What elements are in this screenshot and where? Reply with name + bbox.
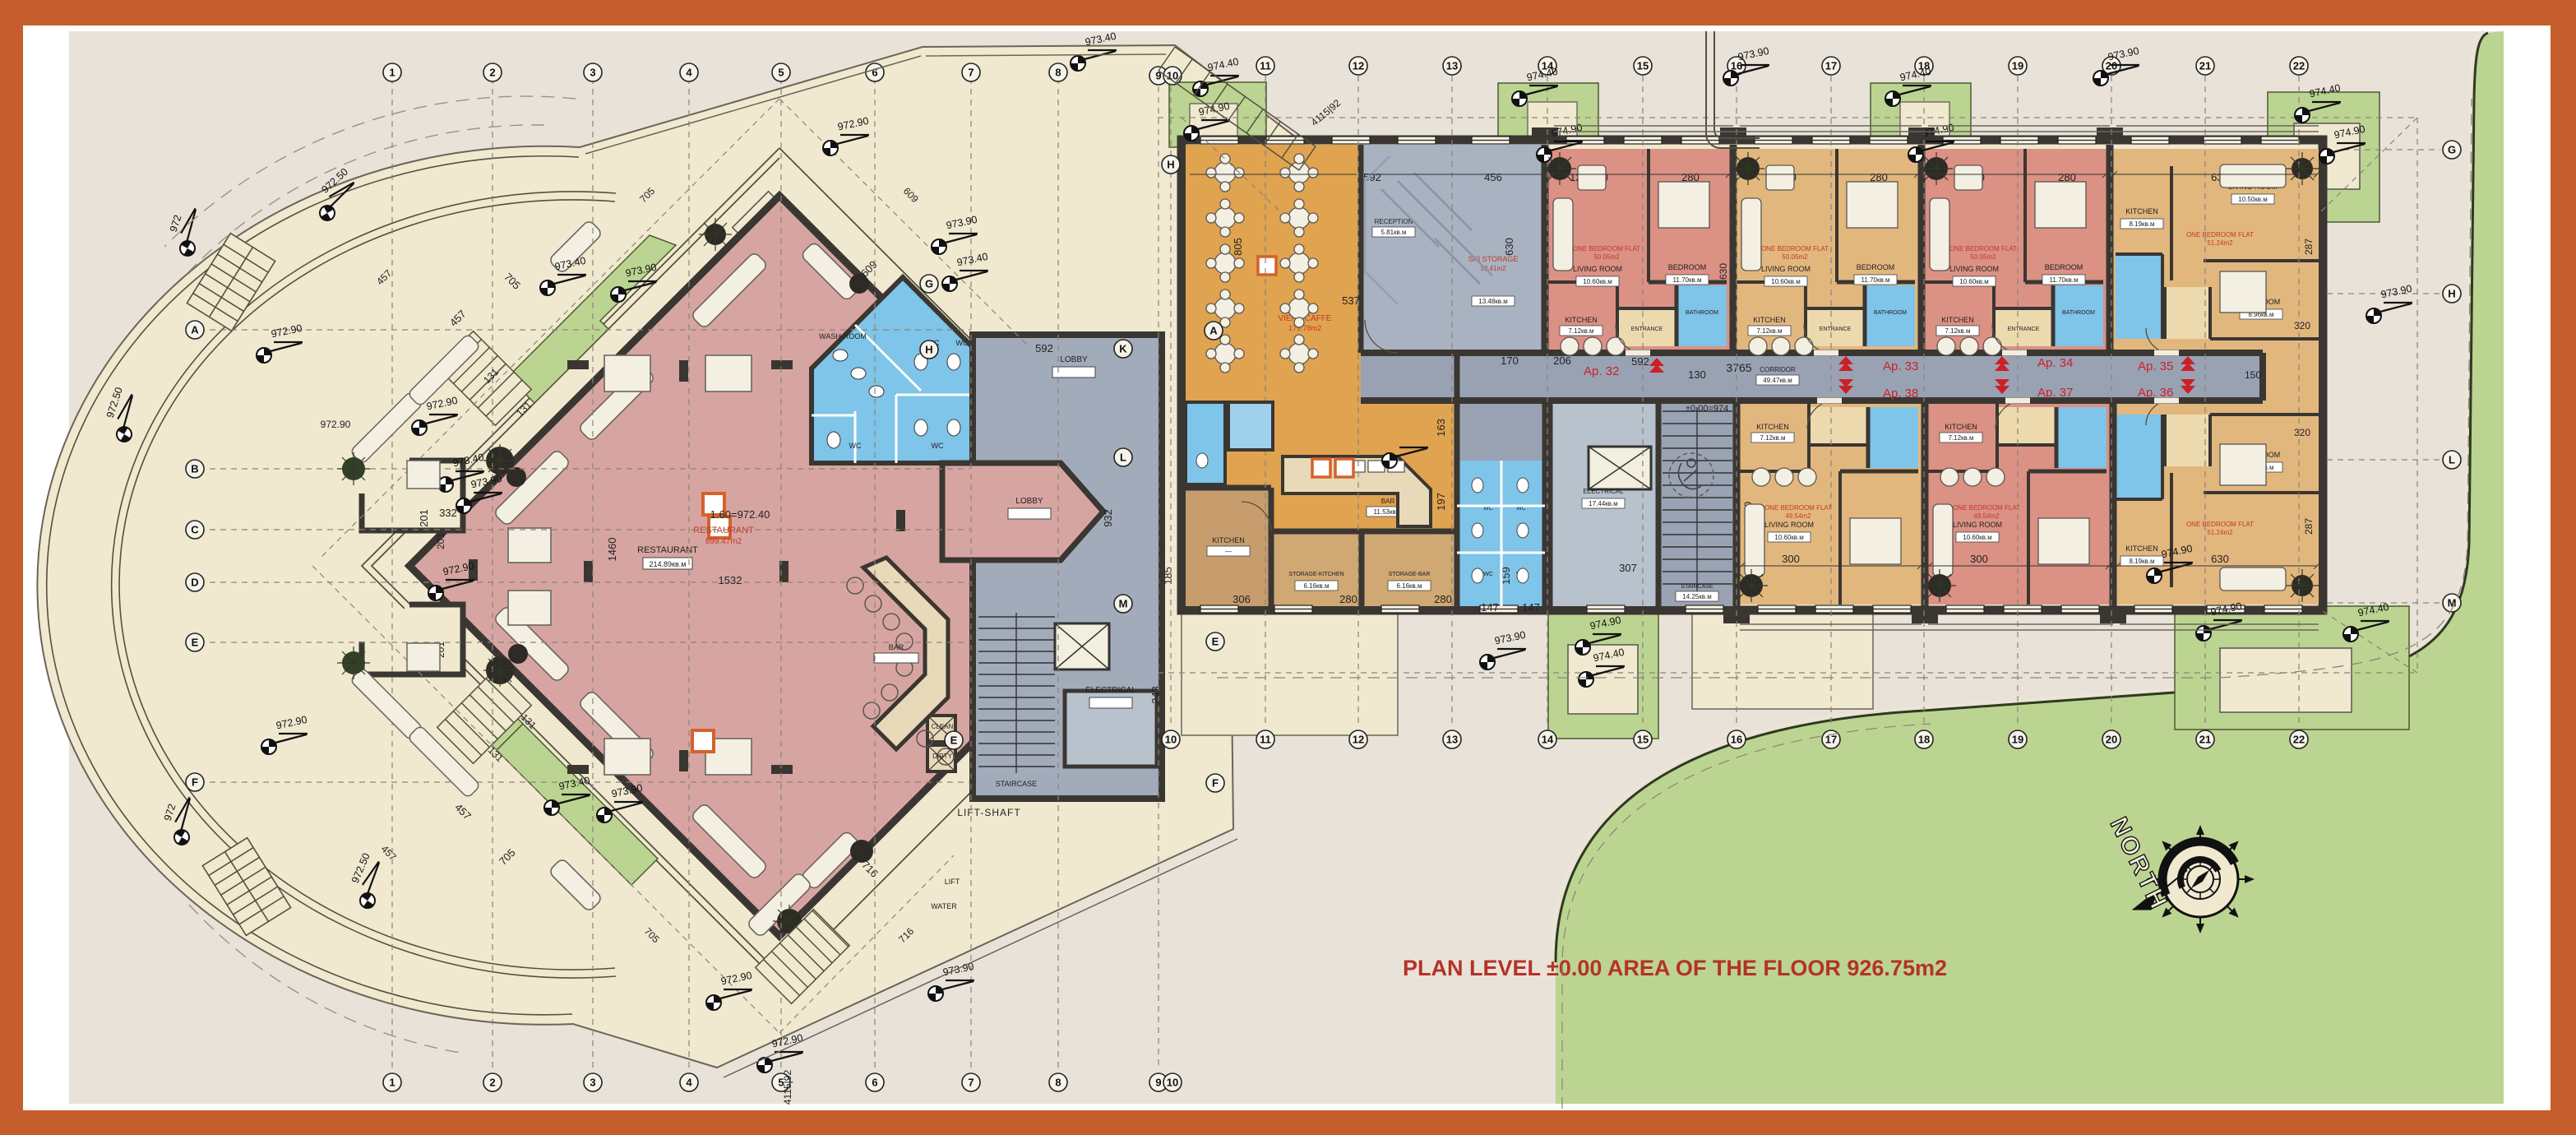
svg-text:243: 243 — [1149, 686, 1162, 704]
svg-text:KITCHEN: KITCHEN — [2125, 207, 2158, 215]
svg-text:12: 12 — [1353, 60, 1364, 72]
svg-text:STORAGE-KITCHEN: STORAGE-KITCHEN — [1288, 572, 1343, 577]
svg-text:STORAGE-BAR: STORAGE-BAR — [1389, 572, 1431, 577]
svg-text:3765: 3765 — [1726, 361, 1751, 374]
svg-text:49.47кв.м: 49.47кв.м — [1763, 377, 1792, 384]
svg-text:Ap. 33: Ap. 33 — [1883, 359, 1918, 373]
svg-text:5: 5 — [778, 67, 784, 79]
svg-text:49.54m2: 49.54m2 — [1973, 512, 2000, 520]
svg-text:BEDROOM: BEDROOM — [1668, 263, 1707, 271]
svg-text:18: 18 — [1918, 734, 1930, 746]
svg-text:300: 300 — [1782, 553, 1800, 565]
svg-text:LIVING ROOM: LIVING ROOM — [1949, 265, 1999, 273]
svg-text:537: 537 — [1342, 294, 1360, 307]
svg-text:ONE BEDROOM FLAT: ONE BEDROOM FLAT — [1573, 245, 1640, 252]
svg-text:13: 13 — [1446, 60, 1458, 72]
svg-text:KITCHEN: KITCHEN — [1945, 423, 1977, 431]
svg-text:50.05m2: 50.05m2 — [1593, 253, 1620, 261]
svg-text:KITCHEN: KITCHEN — [1941, 316, 1974, 324]
svg-text:1.60=972.40: 1.60=972.40 — [710, 508, 770, 521]
svg-text:147: 147 — [1522, 601, 1540, 614]
svg-text:22: 22 — [2293, 60, 2305, 72]
svg-text:M: M — [1119, 598, 1128, 610]
svg-text:179.78m2: 179.78m2 — [1288, 324, 1321, 332]
svg-text:8.19кв.м: 8.19кв.м — [2129, 220, 2154, 228]
svg-text:±0.00=974: ±0.00=974 — [1686, 404, 1728, 414]
svg-text:1532: 1532 — [719, 574, 742, 586]
svg-text:Ap. 34: Ap. 34 — [2037, 356, 2073, 370]
svg-text:F: F — [192, 776, 198, 789]
svg-text:11.70кв.м: 11.70кв.м — [1673, 276, 1702, 284]
svg-text:LIFT-SHAFT: LIFT-SHAFT — [957, 807, 1020, 818]
svg-text:STAIRCASE: STAIRCASE — [996, 780, 1037, 788]
svg-text:306: 306 — [1233, 593, 1251, 605]
svg-text:A: A — [191, 324, 199, 336]
svg-text:BATHROOM: BATHROOM — [2062, 310, 2095, 316]
svg-text:332: 332 — [439, 507, 457, 519]
svg-text:ENTRANCE: ENTRANCE — [1820, 327, 1852, 332]
svg-text:ONE BEDROOM FLAT: ONE BEDROOM FLAT — [1953, 504, 2020, 512]
svg-text:K: K — [1119, 343, 1127, 355]
svg-text:320: 320 — [2294, 320, 2310, 331]
svg-text:8: 8 — [1055, 1077, 1061, 1089]
svg-text:WC: WC — [849, 442, 862, 450]
svg-text:320: 320 — [2294, 427, 2310, 438]
svg-text:BEDROOM: BEDROOM — [1857, 263, 1895, 271]
svg-text:CORRIDOR: CORRIDOR — [1760, 366, 1796, 373]
svg-text:WATER: WATER — [931, 902, 957, 910]
svg-text:972.90: 972.90 — [321, 419, 351, 430]
svg-text:H: H — [2448, 288, 2455, 300]
svg-text:630: 630 — [1718, 263, 1729, 280]
svg-text:7: 7 — [968, 1077, 974, 1089]
svg-text:ENTRANCE: ENTRANCE — [2008, 327, 2040, 332]
svg-text:50.05m2: 50.05m2 — [1970, 253, 1996, 261]
svg-text:7: 7 — [968, 67, 974, 79]
svg-text:51.24m2: 51.24m2 — [2207, 529, 2233, 536]
svg-text:12: 12 — [1353, 734, 1364, 746]
svg-text:E: E — [950, 734, 958, 747]
svg-text:14.25кв.м: 14.25кв.м — [1682, 593, 1712, 600]
svg-text:F: F — [1212, 777, 1219, 790]
svg-text:BATHROOM: BATHROOM — [1874, 310, 1907, 316]
svg-text:DIRTY: DIRTY — [932, 753, 953, 760]
svg-text:2: 2 — [489, 67, 495, 79]
svg-text:10.60кв.м: 10.60кв.м — [1963, 534, 1992, 541]
svg-text:Ap. 38: Ap. 38 — [1883, 387, 1918, 401]
svg-text:KITCHEN: KITCHEN — [1212, 536, 1245, 544]
svg-text:ONE BEDROOM FLAT: ONE BEDROOM FLAT — [2186, 521, 2254, 528]
svg-text:3: 3 — [590, 1077, 595, 1089]
svg-text:50.05m2: 50.05m2 — [1782, 253, 1808, 261]
svg-text:22: 22 — [2293, 734, 2305, 746]
svg-text:13.48кв.м: 13.48кв.м — [1478, 298, 1508, 305]
svg-text:Ap. 37: Ap. 37 — [2037, 386, 2073, 400]
svg-text:RECEPTION: RECEPTION — [1375, 218, 1413, 225]
svg-text:PLAN LEVEL ±0.00 AREA OF THE: PLAN LEVEL ±0.00 AREA OF THE FLOOR 926.7… — [1403, 956, 1947, 980]
svg-text:BEDROOM: BEDROOM — [2045, 263, 2083, 271]
svg-text:10.60кв.м: 10.60кв.м — [1583, 278, 1612, 285]
svg-text:ONE BEDROOM FLAT: ONE BEDROOM FLAT — [1764, 504, 1832, 512]
svg-text:ONE BEDROOM FLAT: ONE BEDROOM FLAT — [2186, 231, 2254, 239]
svg-text:21: 21 — [2199, 60, 2211, 72]
svg-text:206: 206 — [1553, 354, 1571, 367]
svg-text:STAIRCASE: STAIRCASE — [1681, 584, 1713, 590]
svg-text:LIVING ROOM: LIVING ROOM — [1764, 521, 1814, 529]
svg-text:805: 805 — [1232, 238, 1244, 256]
svg-text:C: C — [191, 524, 199, 536]
svg-text:932: 932 — [1102, 509, 1114, 527]
svg-text:130: 130 — [1688, 368, 1706, 381]
svg-text:11.70кв.м: 11.70кв.м — [1861, 276, 1890, 284]
svg-text:21: 21 — [2199, 734, 2211, 746]
svg-text:630: 630 — [1503, 238, 1515, 256]
svg-text:WC: WC — [932, 442, 944, 450]
svg-text:L: L — [2449, 454, 2455, 466]
svg-text:LIFT: LIFT — [945, 878, 960, 886]
svg-text:1: 1 — [389, 1077, 395, 1089]
svg-text:6.16кв.м: 6.16кв.м — [1396, 582, 1422, 590]
svg-text:214.89кв.м: 214.89кв.м — [650, 560, 687, 568]
svg-text:300: 300 — [1970, 553, 1988, 565]
svg-text:RESTAURANT: RESTAURANT — [693, 526, 754, 535]
svg-text:19: 19 — [2012, 60, 2023, 72]
svg-text:17: 17 — [1825, 60, 1837, 72]
svg-text:3: 3 — [590, 67, 595, 79]
svg-text:7.12кв.м: 7.12кв.м — [1760, 434, 1785, 442]
svg-text:1460: 1460 — [606, 538, 618, 562]
svg-text:10.60кв.м: 10.60кв.м — [1959, 278, 1989, 285]
svg-text:E: E — [192, 637, 199, 649]
svg-text:G: G — [925, 278, 933, 290]
svg-text:201: 201 — [435, 533, 446, 549]
svg-text:11.70кв.м: 11.70кв.м — [2050, 276, 2079, 284]
svg-text:51.24m2: 51.24m2 — [2207, 239, 2233, 247]
svg-text:6: 6 — [872, 1077, 877, 1089]
svg-text:Ap. 35: Ap. 35 — [2138, 359, 2173, 373]
svg-text:13: 13 — [1446, 734, 1458, 746]
svg-text:2: 2 — [489, 1077, 495, 1089]
svg-text:16: 16 — [1731, 734, 1742, 746]
svg-text:17.44кв.м: 17.44кв.м — [1589, 500, 1618, 507]
svg-text:7.12кв.м: 7.12кв.м — [1945, 327, 1970, 335]
svg-text:163: 163 — [1435, 419, 1447, 437]
svg-text:8.19кв.м: 8.19кв.м — [2129, 558, 2154, 565]
svg-text:H: H — [925, 344, 932, 356]
svg-text:B: B — [191, 463, 198, 475]
svg-text:20: 20 — [2106, 734, 2117, 746]
svg-text:ENTRANCE: ENTRANCE — [1631, 327, 1663, 332]
svg-text:WC: WC — [956, 339, 969, 347]
svg-text:456: 456 — [1484, 171, 1502, 183]
svg-text:147: 147 — [1481, 601, 1499, 614]
svg-text:7.12кв.м: 7.12кв.м — [1756, 327, 1782, 335]
svg-text:E: E — [1212, 636, 1219, 648]
svg-text:11: 11 — [1260, 734, 1271, 746]
svg-text:KITCHEN: KITCHEN — [1753, 316, 1786, 324]
svg-text:Ap. 32: Ap. 32 — [1584, 364, 1619, 378]
svg-text:BAR: BAR — [1381, 498, 1395, 505]
svg-text:6.16кв.м: 6.16кв.м — [1303, 582, 1329, 590]
svg-text:9: 9 — [1155, 1077, 1161, 1089]
svg-text:KITCHEN: KITCHEN — [2125, 544, 2158, 553]
svg-text:H: H — [1167, 159, 1174, 171]
svg-text:17: 17 — [1825, 734, 1837, 746]
svg-text:LIVING ROOM: LIVING ROOM — [1573, 265, 1622, 273]
svg-text:ELECTRICAL: ELECTRICAL — [1583, 488, 1624, 495]
svg-text:Ap. 36: Ap. 36 — [2138, 386, 2173, 400]
svg-text:10: 10 — [1167, 1077, 1178, 1089]
svg-text:11: 11 — [1260, 60, 1271, 72]
svg-text:L: L — [1120, 452, 1126, 464]
svg-text:10: 10 — [1165, 734, 1177, 746]
svg-text:307: 307 — [1619, 562, 1637, 574]
svg-text:G: G — [2448, 144, 2456, 156]
svg-text:LOBBY: LOBBY — [1060, 355, 1088, 364]
svg-text:—: — — [1225, 548, 1232, 555]
svg-text:5.81кв.м: 5.81кв.м — [1380, 229, 1406, 236]
svg-text:LIVING ROOM: LIVING ROOM — [1761, 265, 1811, 273]
svg-text:201: 201 — [418, 509, 430, 527]
svg-text:WASH-ROOM: WASH-ROOM — [819, 332, 867, 340]
svg-text:280: 280 — [1434, 593, 1452, 605]
svg-text:LIVING ROOM: LIVING ROOM — [1953, 521, 2002, 529]
svg-text:150: 150 — [2245, 369, 2261, 381]
svg-text:287: 287 — [2303, 239, 2315, 255]
svg-text:185: 185 — [1162, 567, 1174, 585]
svg-text:D: D — [191, 577, 198, 589]
svg-text:10.50кв.м: 10.50кв.м — [2238, 196, 2268, 203]
svg-text:4: 4 — [686, 67, 692, 79]
svg-text:M: M — [2448, 597, 2457, 609]
svg-text:14: 14 — [1542, 734, 1554, 746]
svg-text:19: 19 — [2012, 734, 2023, 746]
svg-text:49.54m2: 49.54m2 — [1785, 512, 1811, 520]
svg-text:15: 15 — [1637, 734, 1649, 746]
svg-text:WC: WC — [1483, 572, 1493, 577]
svg-text:KITCHEN: KITCHEN — [1565, 316, 1598, 324]
svg-text:1: 1 — [389, 67, 395, 79]
svg-text:BATHROOM: BATHROOM — [1686, 310, 1718, 316]
svg-text:LOBBY: LOBBY — [1015, 497, 1043, 506]
svg-text:ELECTRICAL: ELECTRICAL — [1085, 686, 1136, 695]
svg-text:BAR: BAR — [889, 643, 904, 651]
svg-text:10.60кв.м: 10.60кв.м — [1771, 278, 1801, 285]
svg-text:10.60кв.м: 10.60кв.м — [1774, 534, 1804, 541]
svg-text:4115|92: 4115|92 — [782, 1070, 793, 1105]
svg-text:7.12кв.м: 7.12кв.м — [1568, 327, 1593, 335]
svg-text:287: 287 — [2303, 518, 2315, 535]
svg-text:CLEAN: CLEAN — [932, 723, 954, 730]
svg-text:899.47m2: 899.47m2 — [705, 537, 742, 546]
svg-text:ONE BEDROOM FLAT: ONE BEDROOM FLAT — [1949, 245, 2017, 252]
svg-text:4: 4 — [686, 1077, 692, 1089]
svg-text:15: 15 — [1637, 60, 1649, 72]
svg-text:592: 592 — [1035, 342, 1053, 354]
svg-text:170: 170 — [1501, 354, 1519, 367]
svg-text:ONE BEDROOM FLAT: ONE BEDROOM FLAT — [1761, 245, 1829, 252]
svg-text:A: A — [1209, 325, 1218, 337]
svg-text:630: 630 — [2211, 553, 2229, 565]
svg-text:8: 8 — [1055, 67, 1061, 79]
svg-text:592: 592 — [1631, 355, 1649, 368]
svg-text:KITCHEN: KITCHEN — [1756, 423, 1789, 431]
svg-text:280: 280 — [1339, 593, 1357, 605]
svg-text:7.12кв.м: 7.12кв.м — [1948, 434, 1973, 442]
svg-text:197: 197 — [1435, 493, 1447, 511]
